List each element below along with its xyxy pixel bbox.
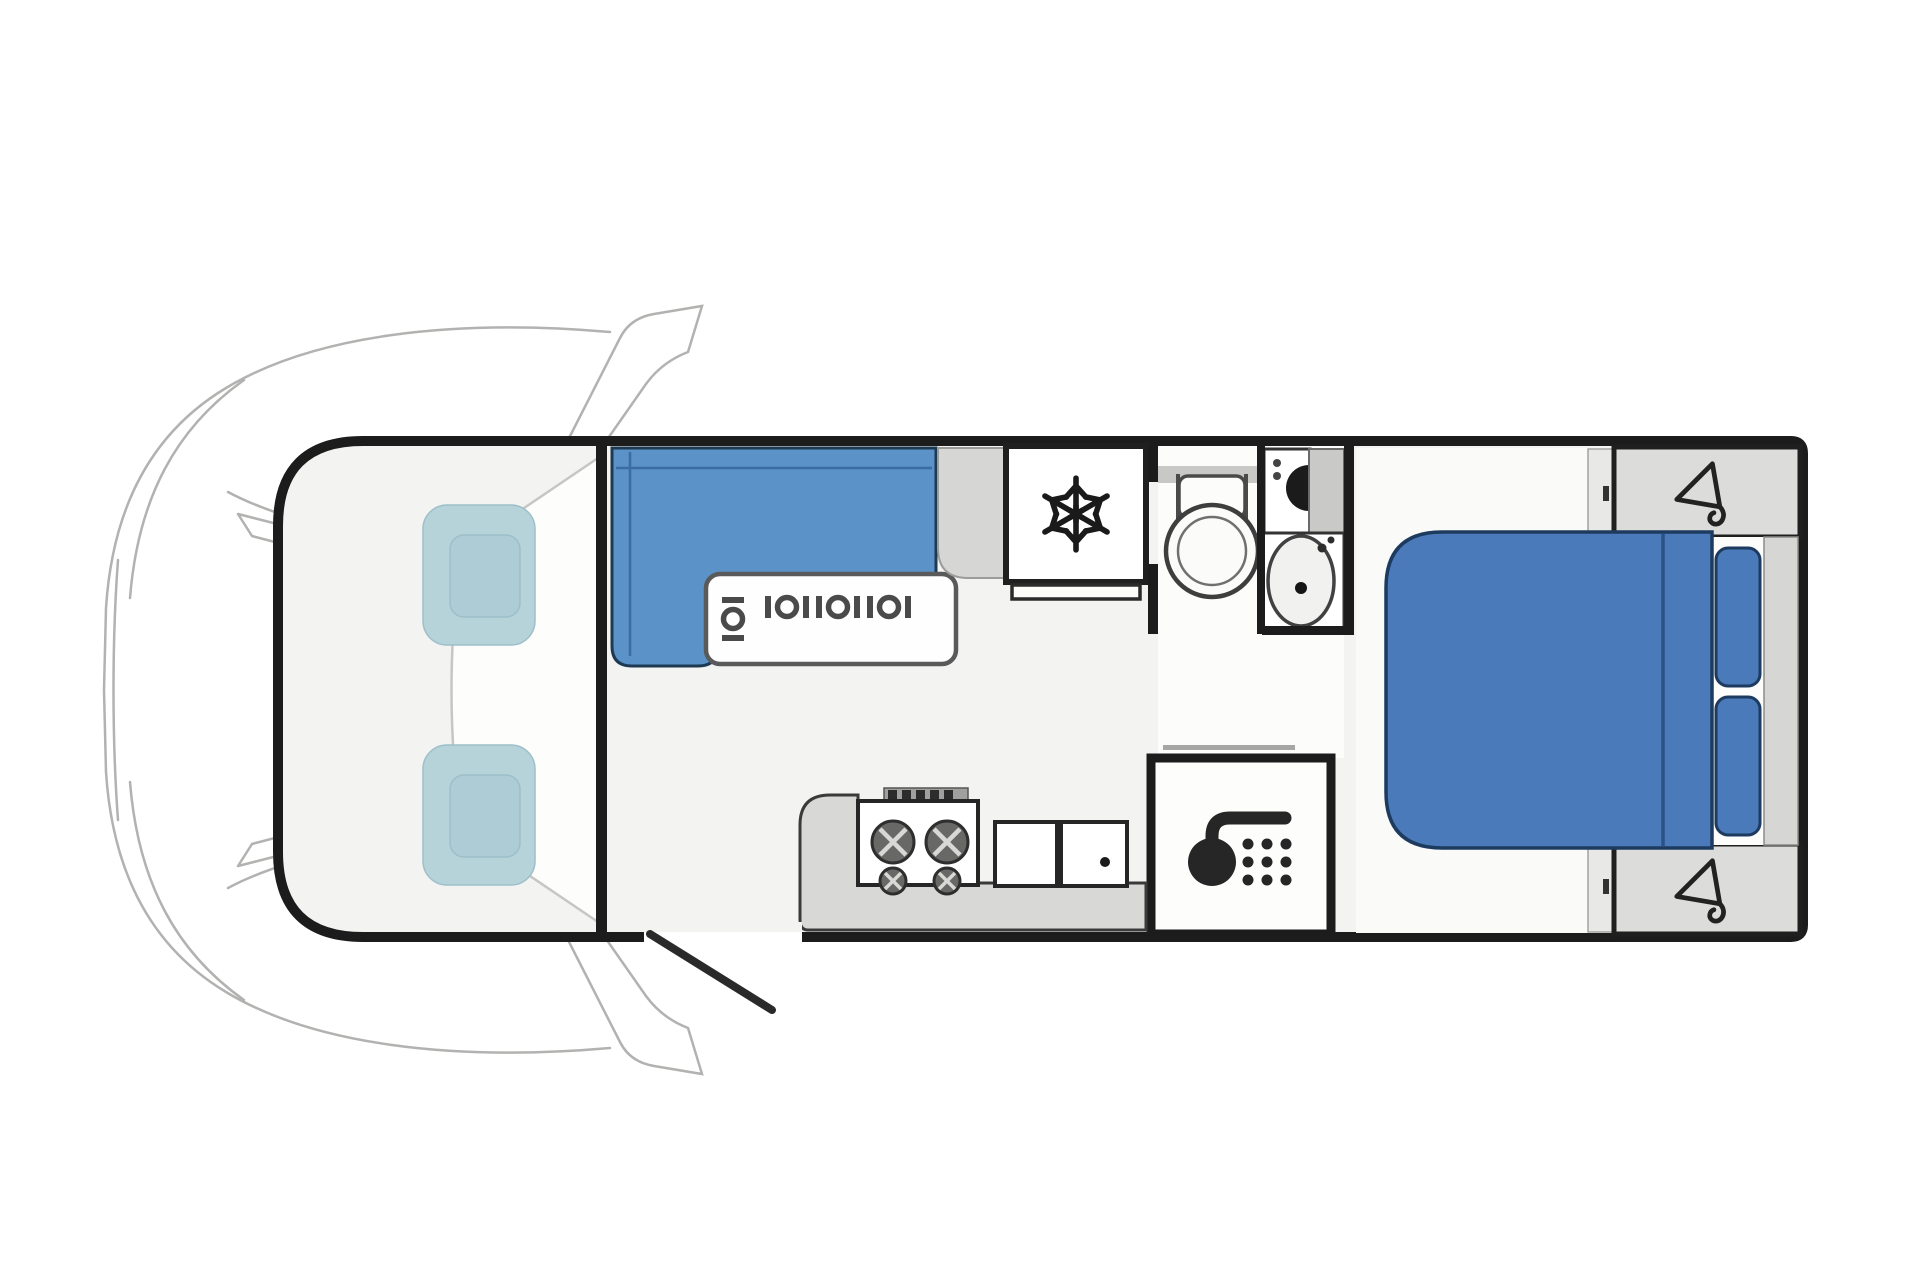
cabinet-handle bbox=[1603, 486, 1609, 501]
cab-seat-passenger bbox=[423, 505, 535, 645]
cab-seat-driver bbox=[423, 745, 535, 885]
pillow-right bbox=[1716, 697, 1760, 835]
bathroom-right-wall bbox=[1344, 446, 1354, 634]
bathroom-cabinet bbox=[1309, 449, 1344, 533]
wardrobe-bottom bbox=[1614, 844, 1800, 934]
wardrobe-top bbox=[1614, 447, 1800, 537]
overhead-cabinet bbox=[938, 448, 1006, 578]
basin-tap-dot bbox=[1318, 544, 1327, 553]
bathroom-bottom-wall bbox=[1262, 626, 1354, 635]
bathroom-wall-stub-bottom bbox=[1148, 564, 1158, 634]
bathroom-wall-stub-top bbox=[1148, 446, 1158, 482]
vanity-control-dot bbox=[1273, 459, 1281, 467]
lounge bbox=[612, 448, 956, 666]
seat-cushion bbox=[450, 535, 520, 617]
pillow-left bbox=[1716, 548, 1760, 686]
floorplan-stage bbox=[0, 0, 1920, 1279]
basin-tap-dot bbox=[1328, 537, 1335, 544]
kitchen-sink-drainer bbox=[1061, 822, 1127, 886]
cabinet-handle bbox=[1603, 879, 1609, 894]
sink-drain-dot bbox=[1100, 857, 1110, 867]
hallway-floor bbox=[1158, 632, 1344, 758]
motorhome-floorplan bbox=[0, 0, 1920, 1279]
shower-cubicle bbox=[1151, 758, 1331, 934]
vanity-control-dot bbox=[1273, 472, 1281, 480]
fridge bbox=[1006, 446, 1146, 599]
sliding-door-track bbox=[1163, 745, 1295, 750]
bedside-cabinet-top bbox=[1588, 449, 1614, 535]
basin-drain bbox=[1295, 582, 1307, 594]
toilet-bowl bbox=[1166, 505, 1258, 597]
seat-cushion bbox=[450, 775, 520, 857]
fridge-vent-step bbox=[1012, 585, 1140, 599]
headboard-shelf bbox=[1764, 537, 1798, 845]
bulkhead-wall bbox=[596, 446, 607, 937]
bathroom-divider-wall bbox=[1257, 446, 1265, 634]
bedside-cabinet-bottom bbox=[1588, 846, 1614, 932]
kitchen-sink-bowl bbox=[995, 822, 1057, 886]
